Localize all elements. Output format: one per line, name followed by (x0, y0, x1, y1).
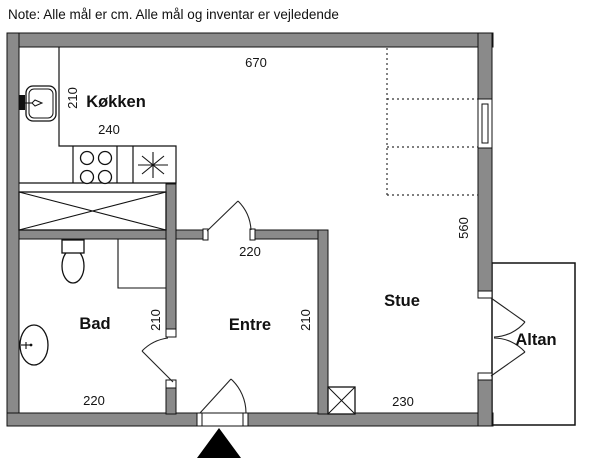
bathroom-sink-icon (20, 325, 48, 365)
stove-burner (99, 152, 112, 165)
wall-right-top (478, 33, 492, 99)
entrance-door-post-left (197, 413, 202, 426)
toilet-icon (62, 240, 84, 283)
room-label-bath: Bad (79, 315, 110, 333)
entrance-door-post-right (243, 413, 248, 426)
wall-bottom-right (248, 413, 493, 426)
room-label-living: Stue (384, 292, 420, 310)
dim-bath-width: 220 (83, 393, 105, 408)
wall-left (7, 33, 19, 426)
window-glass (482, 104, 488, 143)
dim-hall-width: 220 (239, 244, 261, 259)
window (478, 99, 492, 148)
stove-burner (81, 152, 94, 165)
room-label-hall: Entre (229, 316, 271, 334)
sink-drain-asterisk-icon (138, 152, 168, 178)
bath-door-post-top (166, 329, 176, 337)
balcony-door-post-top (478, 291, 492, 298)
dim-total-width: 670 (245, 55, 267, 70)
wardrobe-crossbox (19, 192, 166, 230)
hall-door-post-right (250, 229, 255, 240)
wall-hall-living (318, 230, 328, 414)
entrance-door-opening (197, 413, 248, 426)
wall-bath-hall-lower (166, 388, 176, 414)
dim-bath-depth: 210 (148, 309, 163, 331)
stove-burner (81, 171, 94, 184)
wall-right-middle (478, 148, 492, 291)
dim-hall-depth: 210 (298, 309, 313, 331)
dim-living-depth: 560 (456, 217, 471, 239)
floorplan-drawing: Note: Alle mål er cm. Alle mål og invent… (0, 0, 600, 459)
bath-door-post-bottom (166, 380, 176, 388)
dim-kitchen-depth: 210 (65, 87, 80, 109)
room-label-kitchen: Køkken (86, 93, 146, 111)
wall-bottom-left (7, 413, 197, 426)
note-text: Note: Alle mål er cm. Alle mål og invent… (8, 7, 339, 22)
wall-interior-horizontal-right (255, 230, 328, 239)
dim-living-width: 230 (392, 394, 414, 409)
wall-right-bottom (478, 380, 492, 426)
wall-bath-hall-upper (166, 184, 176, 329)
stove-burner (99, 171, 112, 184)
shaft-crossbox (328, 387, 355, 414)
room-label-balcony: Altan (515, 331, 556, 349)
dim-kitchen-width: 240 (98, 122, 120, 137)
balcony-door-post-bottom (478, 373, 492, 380)
floorplan-page: Note: Alle mål er cm. Alle mål og invent… (0, 0, 600, 459)
wall-top (7, 33, 493, 47)
